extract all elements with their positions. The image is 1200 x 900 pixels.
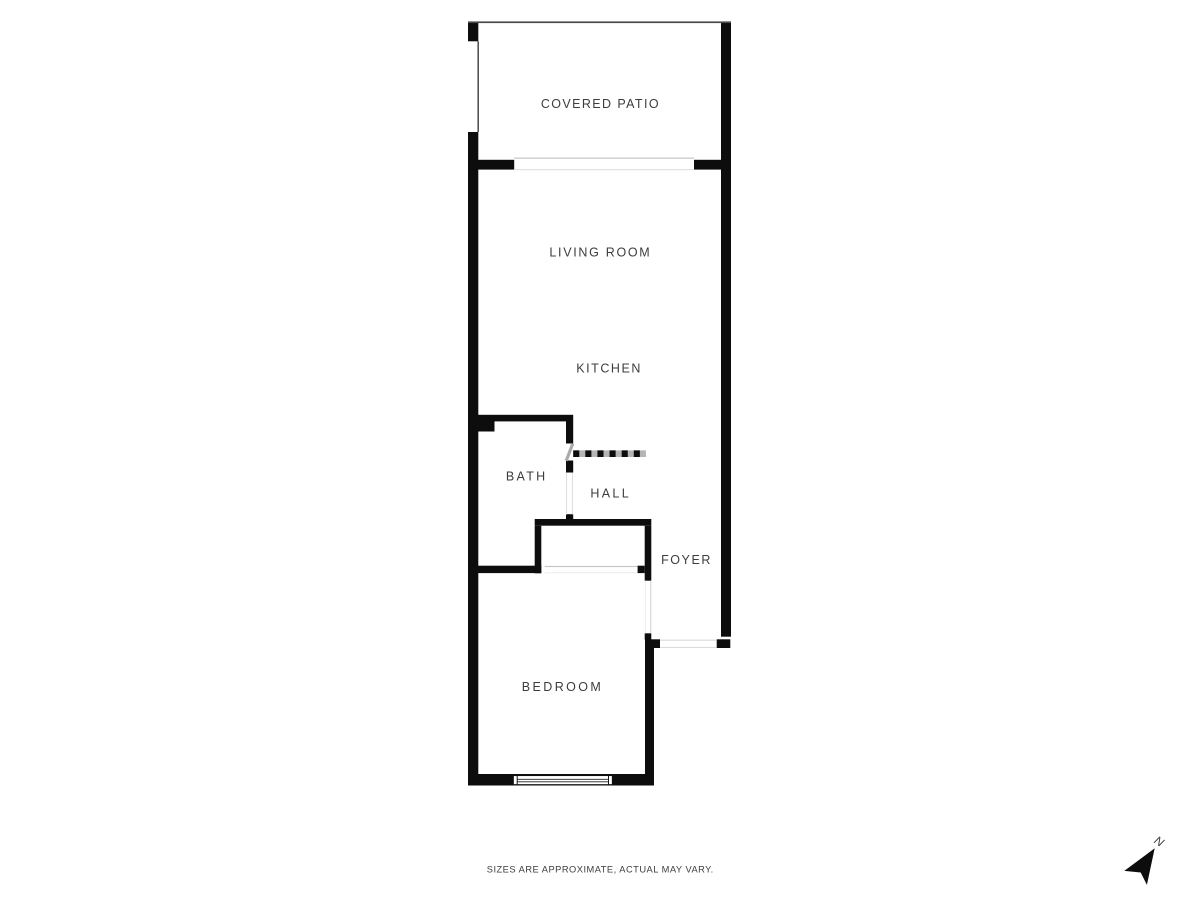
- svg-text:FOYER: FOYER: [661, 553, 712, 567]
- svg-text:KITCHEN: KITCHEN: [576, 362, 642, 376]
- svg-text:LIVING ROOM: LIVING ROOM: [549, 246, 651, 260]
- svg-text:HALL: HALL: [590, 487, 631, 501]
- svg-text:COVERED PATIO: COVERED PATIO: [541, 97, 660, 111]
- svg-text:BATH: BATH: [506, 470, 548, 484]
- svg-text:BEDROOM: BEDROOM: [522, 680, 603, 694]
- svg-text:SIZES ARE APPROXIMATE, ACTUAL: SIZES ARE APPROXIMATE, ACTUAL MAY VARY.: [487, 865, 714, 875]
